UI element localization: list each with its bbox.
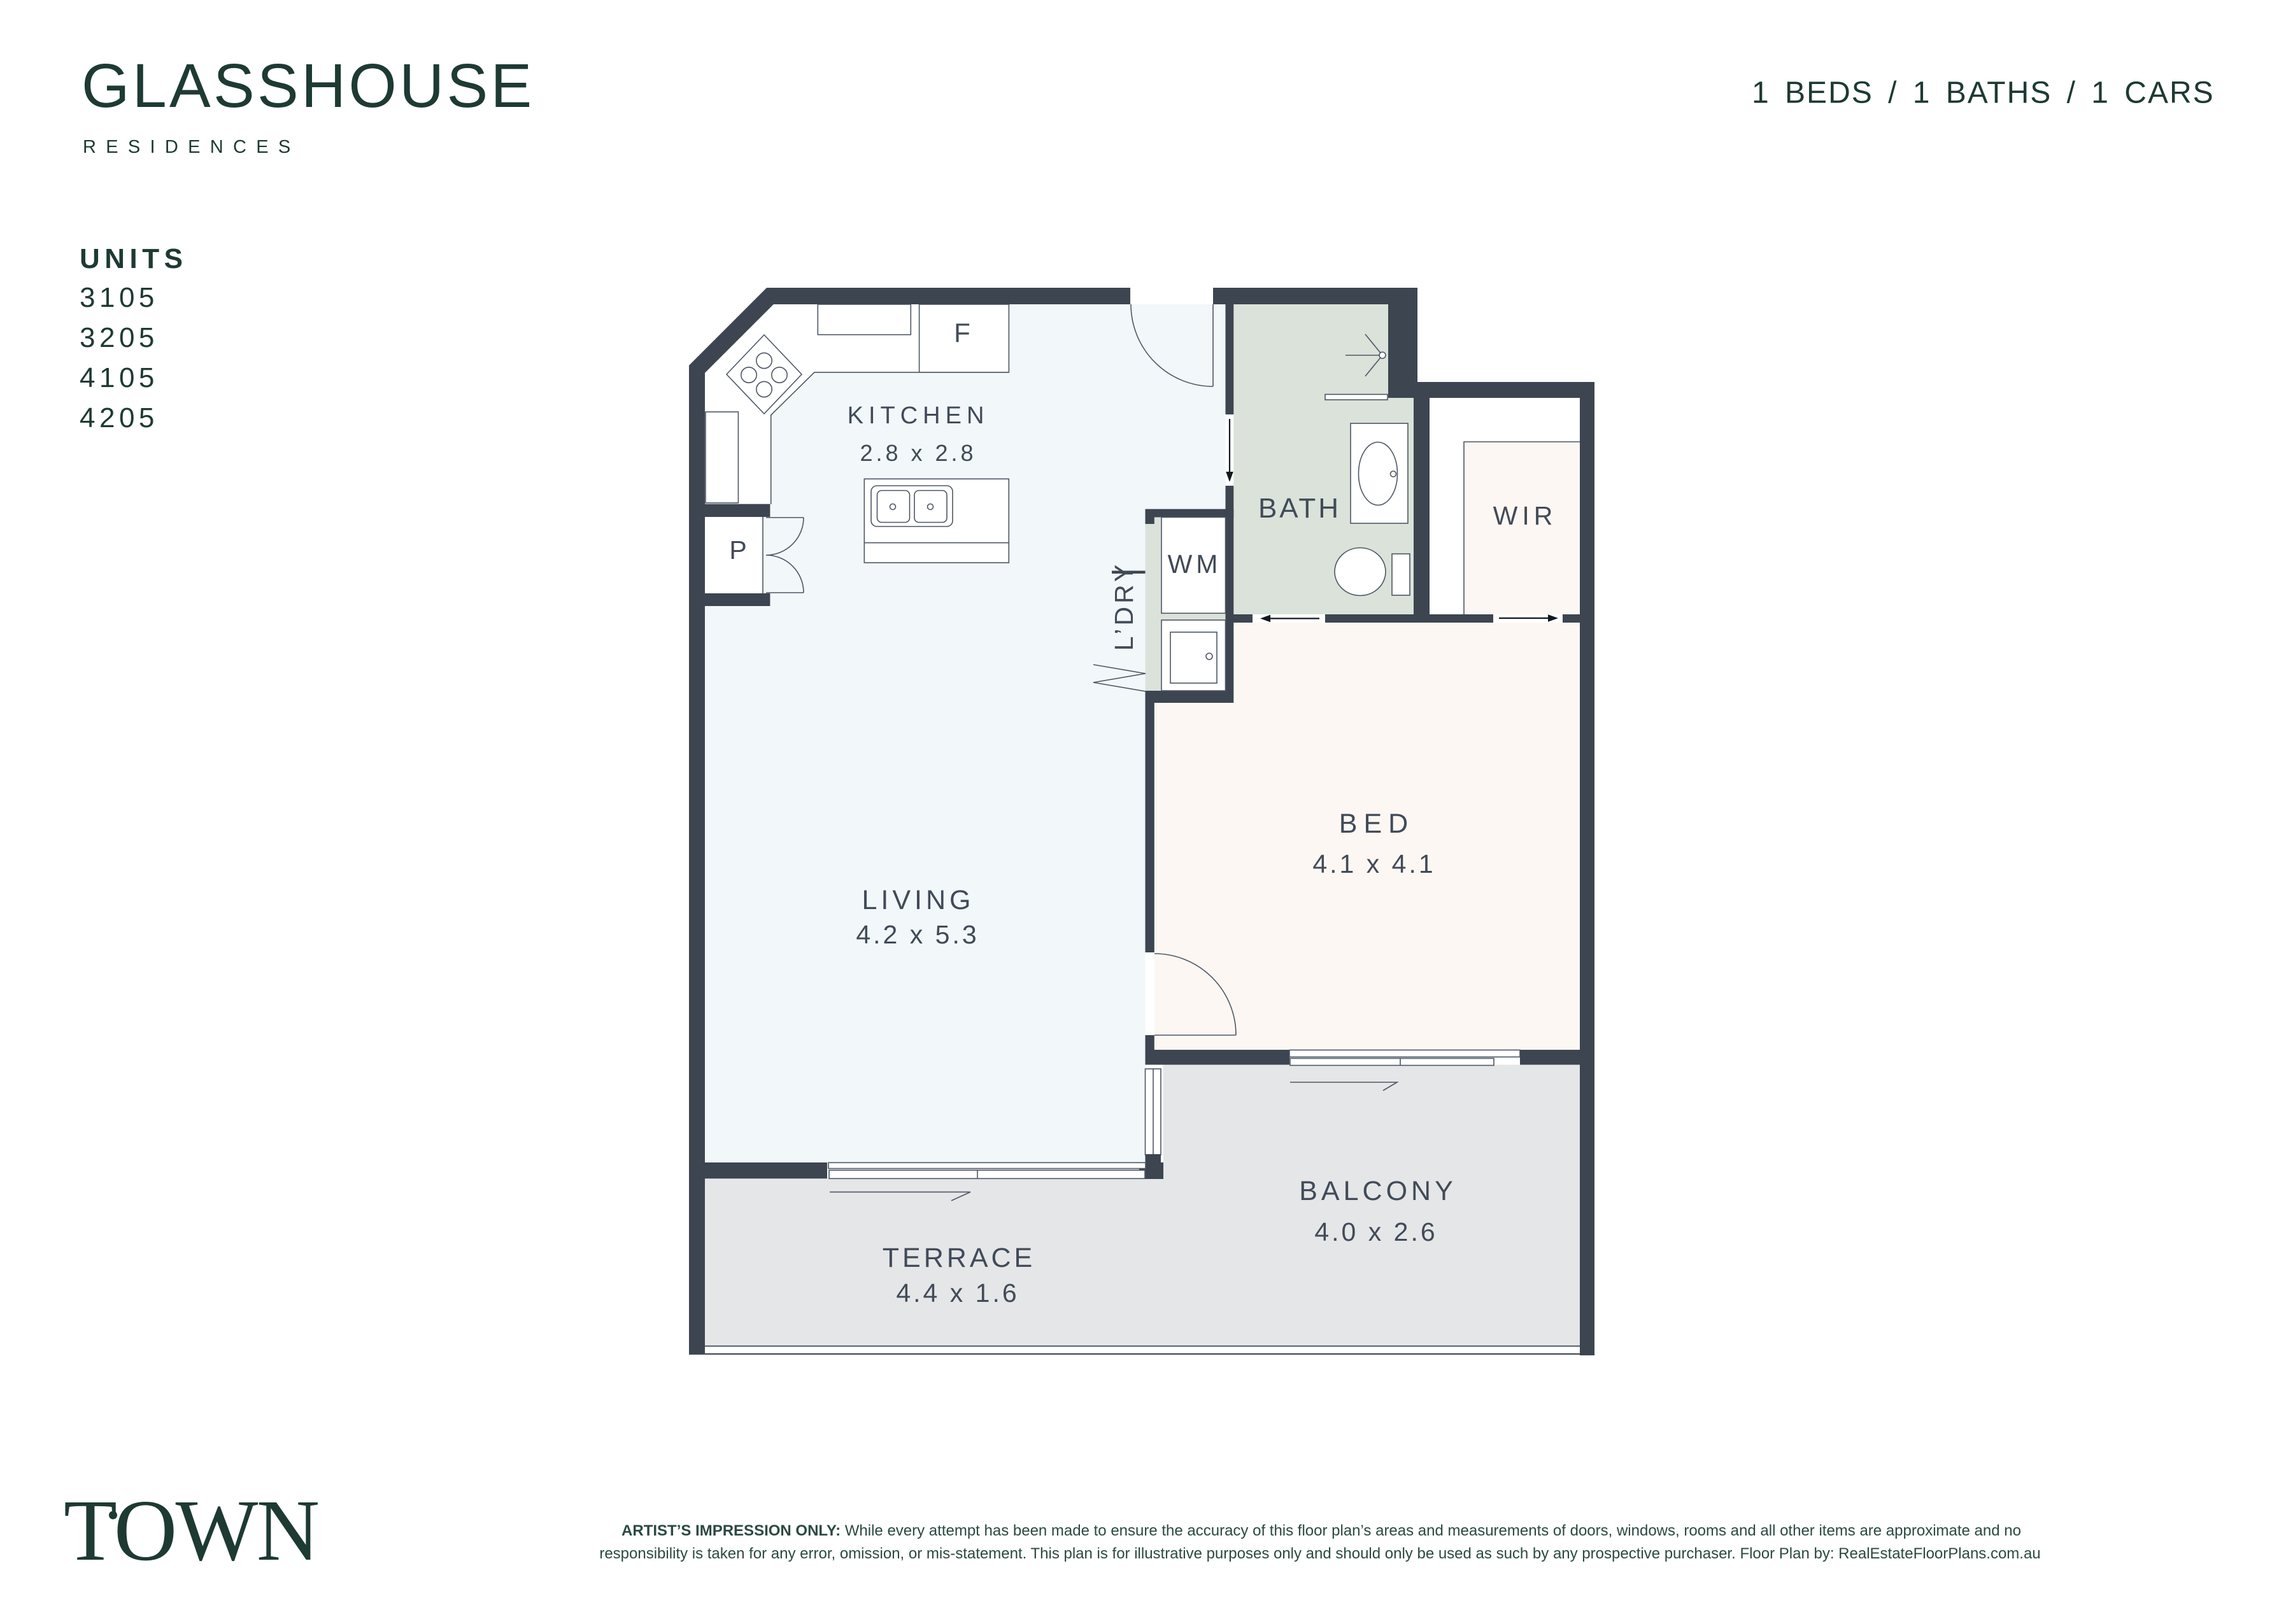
svg-text:BED: BED xyxy=(1339,808,1414,839)
svg-text:L’DRY: L’DRY xyxy=(1109,561,1139,651)
svg-text:WIR: WIR xyxy=(1493,501,1558,530)
svg-text:2.8 x 2.8: 2.8 x 2.8 xyxy=(860,440,976,466)
svg-text:TOWN: TOWN xyxy=(64,1481,318,1579)
svg-text:3205: 3205 xyxy=(80,322,159,353)
svg-text:4105: 4105 xyxy=(80,362,159,393)
svg-text:4.1 x 4.1: 4.1 x 4.1 xyxy=(1312,849,1435,879)
svg-text:BALCONY: BALCONY xyxy=(1299,1176,1457,1206)
svg-text:TERRACE: TERRACE xyxy=(883,1243,1035,1273)
svg-text:4.2 x 5.3: 4.2 x 5.3 xyxy=(856,920,979,949)
svg-text:RESIDENCES: RESIDENCES xyxy=(83,137,301,157)
svg-text:4.0 x 2.6: 4.0 x 2.6 xyxy=(1314,1217,1437,1246)
svg-text:4205: 4205 xyxy=(80,402,159,434)
svg-text:UNITS: UNITS xyxy=(80,243,188,274)
svg-text:BATH: BATH xyxy=(1258,493,1341,524)
svg-text:responsibility is taken for an: responsibility is taken for any error, o… xyxy=(599,1545,2040,1562)
svg-text:LIVING: LIVING xyxy=(862,885,975,915)
svg-text:3105: 3105 xyxy=(80,282,159,313)
svg-text:WM: WM xyxy=(1168,549,1222,579)
svg-text:P: P xyxy=(729,535,749,565)
svg-text:F: F xyxy=(954,318,974,348)
svg-text:KITCHEN: KITCHEN xyxy=(848,402,990,429)
svg-text:GLASSHOUSE: GLASSHOUSE xyxy=(82,51,534,120)
svg-text:4.4 x 1.6: 4.4 x 1.6 xyxy=(896,1278,1019,1308)
svg-text:1 BEDS / 1 BATHS / 1 CARS: 1 BEDS / 1 BATHS / 1 CARS xyxy=(1752,76,2215,110)
svg-text:ARTIST’S IMPRESSION ONLY: Whil: ARTIST’S IMPRESSION ONLY: While every at… xyxy=(621,1522,2021,1539)
